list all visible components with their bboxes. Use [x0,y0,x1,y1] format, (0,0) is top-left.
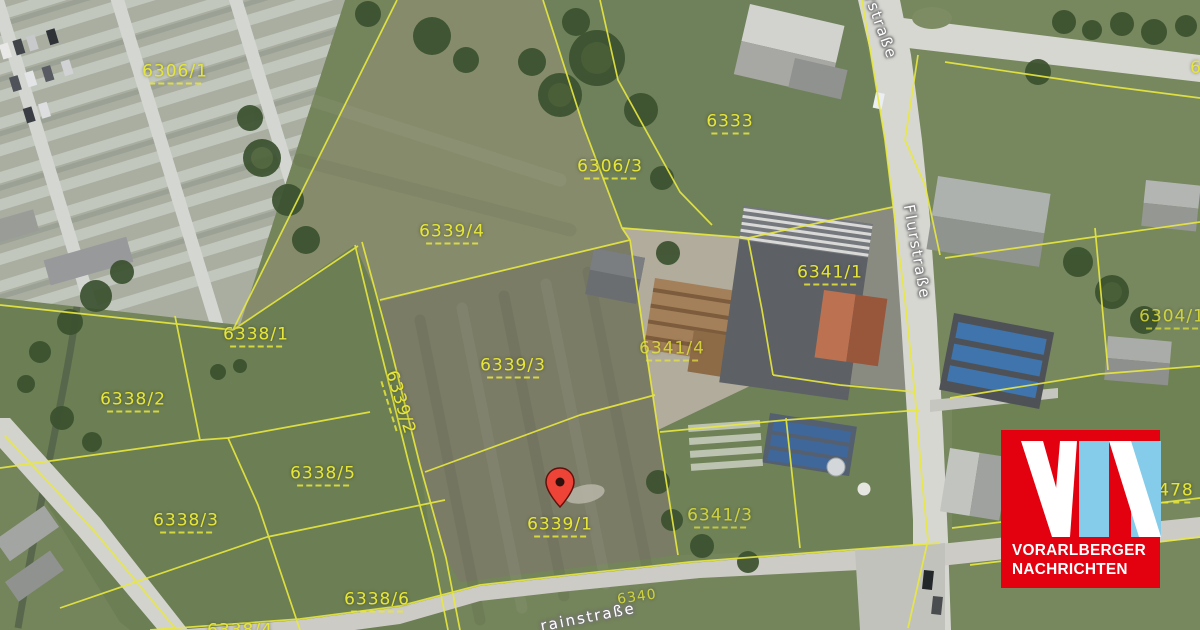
parcel-label: 6341/3 [687,506,753,529]
parcel-label: 6338/5 [290,464,356,487]
logo-line2: NACHRICHTEN [1012,561,1154,580]
parcel-label: 6341/1 [797,263,863,286]
parcel-label: 6306/1 [142,62,208,85]
logo-line1: VORARLBERGER [1012,542,1154,561]
map-canvas: 6306/1 6333 6306/3 6339/4 6338/1 6338/2 … [0,0,1200,630]
vn-monogram-icon [1012,440,1161,538]
parcel-label: 6338/1 [223,325,289,348]
vn-logo: VORARLBERGER NACHRICHTEN [1001,430,1160,588]
parcel-label: 6339/4 [419,222,485,245]
parcel-label: 478 [1158,481,1193,504]
parcel-label: 6339/1 [527,515,593,538]
parcel-label: 6333 [706,112,753,135]
parcel-label: 6338/6 [344,590,410,613]
location-pin-icon [540,460,580,510]
parcel-label: 6339/3 [480,356,546,379]
parcel-label: 6304/1 [1139,307,1200,330]
trampoline [827,458,845,476]
parcel-label: 6306/3 [577,157,643,180]
parcel-label: 6341/4 [639,339,705,362]
parcel-label: 6338/4 [207,621,273,630]
parcel-label: 6338/3 [153,511,219,534]
red-roof-house [815,290,888,366]
parcel-label: 6338/2 [100,390,166,413]
parcel-label: 6 [1190,58,1200,78]
